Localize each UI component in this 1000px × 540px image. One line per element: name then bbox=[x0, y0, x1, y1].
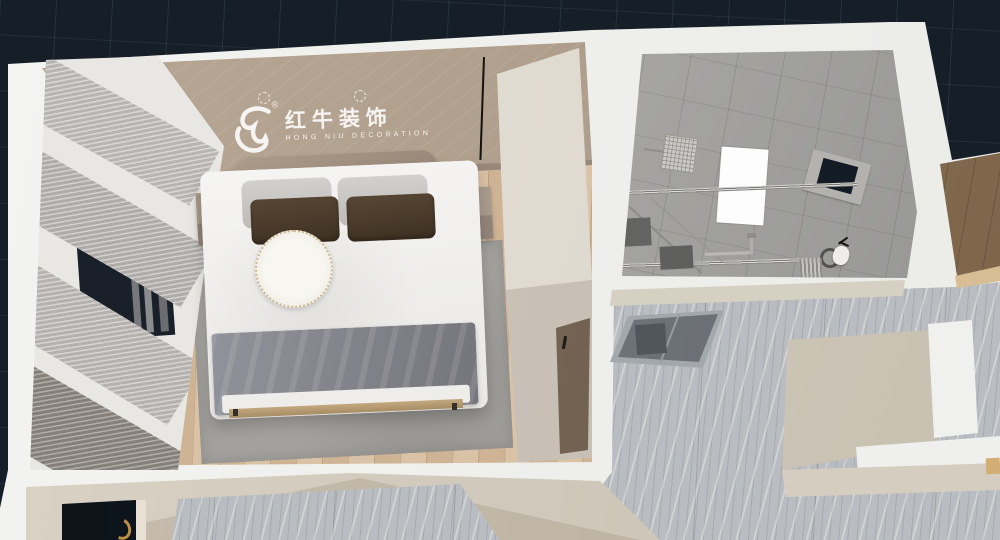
shower-arm bbox=[644, 148, 664, 153]
drain-mat bbox=[659, 245, 693, 270]
bathroom-window bbox=[803, 149, 872, 205]
bathroom-window-glass bbox=[816, 158, 858, 194]
corner-tan-patch bbox=[986, 458, 1000, 475]
sliding-door-panel-dark bbox=[635, 323, 667, 355]
bed-foot bbox=[452, 403, 457, 410]
shower-head bbox=[660, 134, 699, 174]
drain-mat bbox=[623, 217, 651, 246]
towel-pipe bbox=[705, 251, 753, 256]
pillow-brown-right bbox=[346, 193, 436, 242]
towel-pipe-riser bbox=[750, 238, 753, 254]
brand-watermark: ® 红牛装饰 HONG NIU DECORATION bbox=[232, 84, 454, 164]
entry-door-frame bbox=[136, 500, 146, 540]
hongniu-bull-icon: ® bbox=[232, 101, 276, 152]
round-tray bbox=[255, 230, 333, 308]
registered-mark: ® bbox=[271, 99, 278, 109]
towel-radiator bbox=[799, 257, 822, 278]
bed-foot bbox=[233, 409, 238, 416]
brand-name-cn: 红牛装饰 bbox=[284, 105, 430, 131]
faucet-head bbox=[747, 233, 756, 238]
design-viewport[interactable]: ® 红牛装饰 HONG NIU DECORATION bbox=[0, 0, 1000, 540]
